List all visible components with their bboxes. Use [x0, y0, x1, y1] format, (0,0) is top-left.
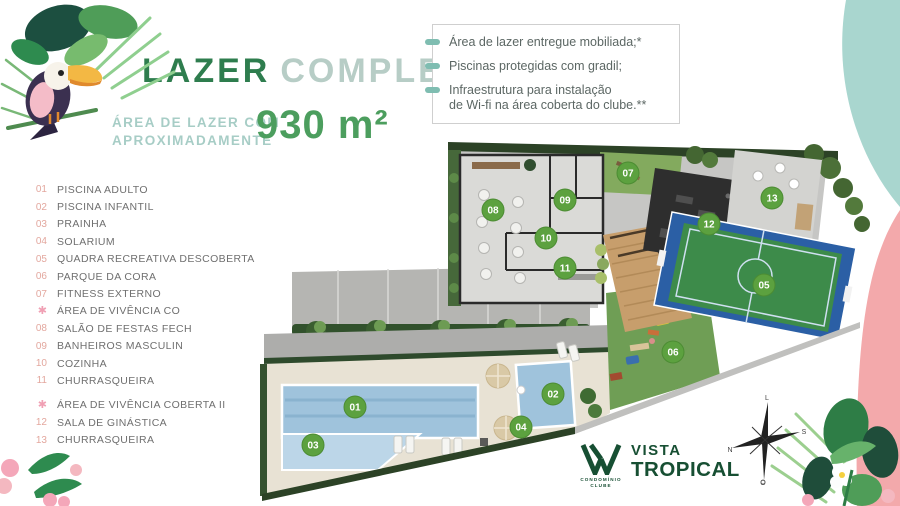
plan-marker-05: 05 [753, 274, 775, 296]
plan-marker-01: 01 [344, 396, 366, 418]
legend-label: PRAINHA [57, 218, 106, 230]
legend-number: 09 [30, 341, 47, 352]
plan-marker-09: 09 [554, 189, 576, 211]
svg-text:11: 11 [560, 264, 571, 275]
legend-row: 04SOLARIUM [30, 233, 255, 250]
legend-number: 08 [30, 323, 47, 334]
plan-marker-07: 07 [617, 162, 639, 184]
legend-row: 05QUADRA RECREATIVA DESCOBERTA [30, 251, 255, 268]
legend-number: 04 [30, 236, 47, 247]
plan-marker-02: 02 [542, 383, 564, 405]
plan-marker-10: 10 [535, 227, 557, 249]
plan-marker-04: 04 [510, 416, 532, 438]
legend-label: SALA DE GINÁSTICA [57, 417, 167, 429]
subtitle: ÁREA DE LAZER COM APROXIMADAMENTE [112, 114, 280, 150]
feature-item: Infraestrutura para instalaçãode Wi-fi n… [449, 83, 667, 113]
plan-marker-13: 13 [761, 187, 783, 209]
legend-row: 02PISCINA INFANTIL [30, 198, 255, 215]
legend-label: CHURRASQUEIRA [57, 434, 154, 446]
compass-top-label: L [765, 395, 769, 402]
legend-number: 12 [30, 417, 47, 428]
legend-label: SOLARIUM [57, 236, 115, 248]
feature-item: Área de lazer entregue mobiliada;* [449, 35, 667, 50]
legend-label: PISCINA INFANTIL [57, 201, 154, 213]
dash-bullet-icon [425, 63, 440, 69]
feature-item: Piscinas protegidas com gradil; [449, 59, 667, 74]
svg-text:13: 13 [766, 194, 778, 205]
svg-text:08: 08 [487, 206, 499, 217]
legend-label: QUADRA RECREATIVA DESCOBERTA [57, 253, 255, 265]
logo-mark-icon [580, 443, 622, 475]
legend-row: ✱ÁREA DE VIVÊNCIA CO [30, 303, 255, 320]
legend-row: 09BANHEIROS MASCULIN [30, 338, 255, 355]
legend-label: FITNESS EXTERNO [57, 288, 161, 300]
svg-text:10: 10 [540, 234, 552, 245]
legend-number: 05 [30, 254, 47, 265]
legend-label: PISCINA ADULTO [57, 184, 148, 196]
plan-marker-06: 06 [662, 341, 684, 363]
legend-number: 06 [30, 271, 47, 282]
legend-row: 06PARQUE DA CORA [30, 268, 255, 285]
legend-label: SALÃO DE FESTAS FECH [57, 323, 192, 335]
legend-number: 10 [30, 358, 47, 369]
legend-label: PARQUE DA CORA [57, 271, 156, 283]
legend-row: 10COZINHA [30, 355, 255, 372]
plan-marker-11: 11 [554, 257, 576, 279]
flower-icon: ✱ [30, 306, 47, 316]
legend-list: 01PISCINA ADULTO02PISCINA INFANTIL03PRAI… [30, 181, 255, 449]
foliage-bottomleft [0, 453, 82, 506]
svg-text:06: 06 [667, 348, 679, 359]
legend-label: ÁREA DE VIVÊNCIA COBERTA II [57, 399, 226, 411]
plan-marker-12: 12 [698, 213, 720, 235]
svg-text:09: 09 [559, 196, 571, 207]
flower-icon: ✱ [30, 400, 47, 410]
title-primary: LAZER [142, 52, 270, 90]
svg-text:12: 12 [703, 220, 715, 231]
dash-bullet-icon [425, 87, 440, 93]
logo-name: VISTA TROPICAL [631, 443, 740, 481]
svg-text:04: 04 [515, 423, 527, 434]
legend-row: ✱ÁREA DE VIVÊNCIA COBERTA II [30, 397, 255, 414]
svg-text:01: 01 [349, 403, 361, 414]
legend-number: 13 [30, 435, 47, 446]
legend-label: CHURRASQUEIRA [57, 375, 154, 387]
legend-number: 11 [30, 375, 47, 386]
svg-text:03: 03 [307, 441, 319, 452]
features-box: Área de lazer entregue mobiliada;*Piscin… [432, 24, 680, 124]
legend-row: 03PRAINHA [30, 216, 255, 233]
dash-bullet-icon [425, 39, 440, 45]
plan-adult-pool [282, 385, 478, 438]
svg-text:02: 02 [547, 390, 559, 401]
legend-row: 11CHURRASQUEIRA [30, 372, 255, 389]
compass-right-label: S [802, 429, 807, 436]
legend-number: 02 [30, 202, 47, 213]
toucan [8, 62, 102, 140]
legend-row: 07FITNESS EXTERNO [30, 285, 255, 302]
plan-marker-08: 08 [482, 199, 504, 221]
legend-row: 12SALA DE GINÁSTICA [30, 414, 255, 431]
legend-row: 01PISCINA ADULTO [30, 181, 255, 198]
legend-number: 01 [30, 184, 47, 195]
legend-row: 13CHURRASQUEIRA [30, 431, 255, 448]
page: 01020304050607080910111213 [0, 0, 900, 506]
legend-row: 08SALÃO DE FESTAS FECH [30, 320, 255, 337]
plan-clubhouse [460, 155, 603, 303]
legend-label: BANHEIROS MASCULIN [57, 340, 183, 352]
legend-label: COZINHA [57, 358, 107, 370]
legend-number: 03 [30, 219, 47, 230]
logo-tagline: CONDOMÍNIO CLUBE [580, 477, 621, 488]
plan-marker-03: 03 [302, 434, 324, 456]
brand-logo: CONDOMÍNIO CLUBE VISTA TROPICAL [580, 443, 740, 488]
legend-number: 07 [30, 289, 47, 300]
svg-text:07: 07 [622, 169, 634, 180]
svg-text:05: 05 [758, 281, 770, 292]
legend-label: ÁREA DE VIVÊNCIA CO [57, 305, 180, 317]
